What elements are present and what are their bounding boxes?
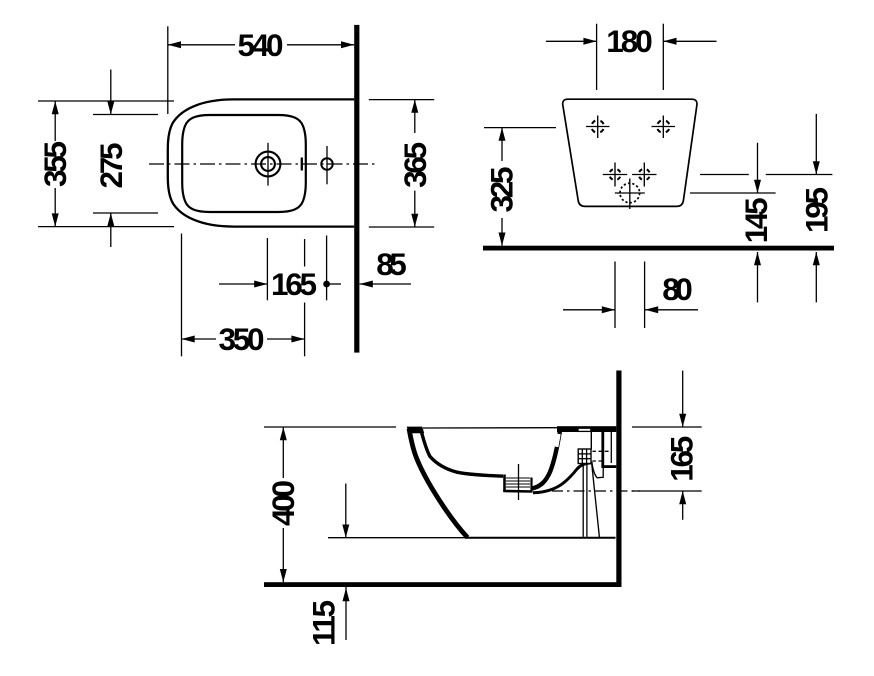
svg-text:195: 195 [798,187,834,233]
svg-text:145: 145 [738,197,774,243]
svg-text:85: 85 [376,246,407,282]
svg-text:165: 165 [271,266,317,302]
svg-text:355: 355 [37,141,73,187]
svg-text:350: 350 [219,321,265,357]
svg-text:325: 325 [484,167,520,213]
svg-text:180: 180 [606,23,653,59]
svg-text:400: 400 [265,480,301,526]
svg-text:275: 275 [93,143,129,189]
svg-text:540: 540 [238,27,284,63]
svg-text:115: 115 [306,600,342,646]
svg-text:365: 365 [397,142,433,188]
svg-text:80: 80 [662,271,693,307]
svg-text:165: 165 [664,436,700,482]
